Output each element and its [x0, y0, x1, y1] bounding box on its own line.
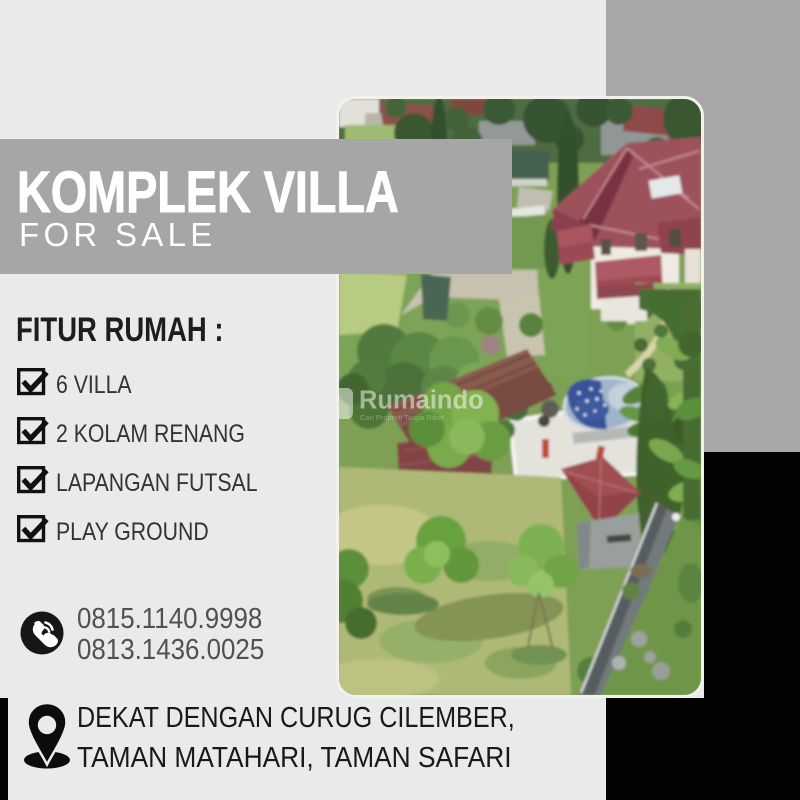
- svg-text:Rumaindo: Rumaindo: [359, 387, 484, 415]
- svg-text:Cari Properti Tanpa Ribet: Cari Properti Tanpa Ribet: [360, 413, 445, 422]
